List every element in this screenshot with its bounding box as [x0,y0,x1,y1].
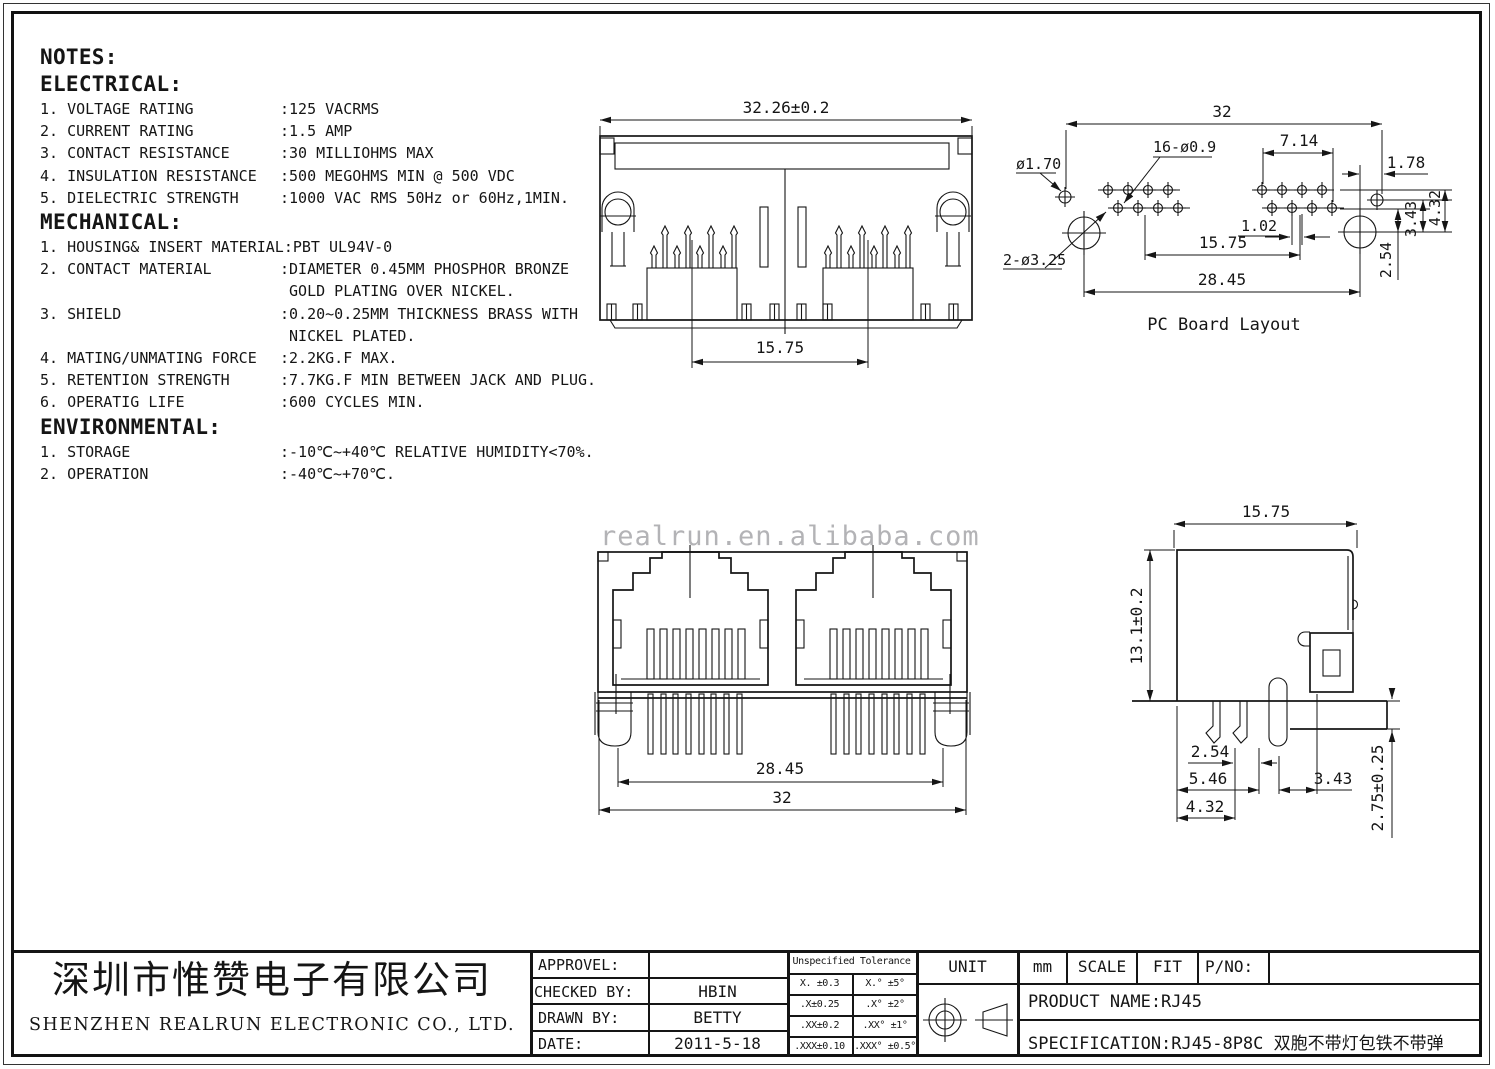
tolerance-cell: X.° ±5° [854,978,916,989]
grid-line [1017,1019,1482,1021]
front-view-drawing: 28.45 32 [585,515,985,820]
dim-label: 5.46 [1189,769,1228,788]
note-line: 3. SHIELD:0.20~0.25MM THICKNESS BRASS WI… [40,303,615,325]
dim-label: 32 [1212,102,1231,121]
grid-line [1197,950,1199,983]
tolerance-cell: .XXX±0.10 [787,1041,852,1052]
notes-block: NOTES: ELECTRICAL: 1. VOLTAGE RATING:125… [40,44,615,485]
note-line: 3. CONTACT RESISTANCE:30 MILLIOHMS MAX [40,142,615,164]
tolerance-cell: .XX±0.2 [787,1020,852,1031]
field-label: DATE: [538,1035,583,1053]
dim-label: 3.43 [1314,769,1353,788]
section-heading-mechanical: MECHANICAL: [40,209,615,236]
title-block-top-line [11,950,1482,953]
engineering-drawing-sheet: { "watermark": "realrun.en.alibaba.com",… [0,0,1495,1069]
tolerance-cell: X. ±0.3 [787,978,852,989]
side-view-drawing: 15.75 13.1±0.2 2.54 5.46 3.43 4.32 2.75±… [1122,498,1482,843]
dim-label: 2.75±0.25 [1368,745,1387,832]
note-line: 1. HOUSING& INSERT MATERIAL:PBT UL94V-0 [40,236,615,258]
dim-label: 2.54 [1191,742,1230,761]
note-line: 5. RETENTION STRENGTH:7.7KG.F MIN BETWEE… [40,369,615,391]
tolerance-cell: .XX° ±1° [854,1020,916,1031]
grid-line [787,994,918,996]
hole-label: 16-ø0.9 [1153,138,1216,156]
tolerance-cell: .X±0.25 [787,999,852,1010]
dim-label: 1.78 [1387,153,1426,172]
note-line: NICKEL PLATED. [40,325,615,347]
grid-line [787,1015,918,1017]
dim-label: 3.43 [1402,201,1420,237]
tolerance-cell: .X° ±2° [854,999,916,1010]
dim-label: 15.75 [1199,233,1247,252]
pcb-layout-drawing: 32 7.14 1.78 ø1.70 16-ø0.9 2-ø3.25 1.02 … [995,100,1470,340]
note-line: 2. CURRENT RATING:1.5 AMP [40,120,615,142]
product-name: PRODUCT NAME:RJ45 [1028,992,1202,1012]
dim-label: 15.75 [756,338,804,357]
dim-label: 4.32 [1186,797,1225,816]
specification: SPECIFICATION:RJ45-8P8C 双胞不带灯包铁不带弹 [1028,1029,1444,1054]
dim-label: 13.1±0.2 [1127,587,1146,664]
hole-label: ø1.70 [1016,155,1061,173]
section-heading-electrical: ELECTRICAL: [40,71,615,98]
pcb-caption: PC Board Layout [1147,315,1301,335]
field-value: BETTY [648,1008,787,1027]
note-line: 2. OPERATION:-40℃~+70℃. [40,463,615,485]
grid-line [787,1036,918,1038]
company-name-cn: 深圳市惟赞电子有限公司 [14,958,530,1002]
unit-label: UNIT [918,957,1017,976]
note-line: 6. OPERATIG LIFE:600 CYCLES MIN. [40,391,615,413]
top-view-drawing: 32.26±0.2 15.75 [586,94,988,386]
pno-label: P/NO: [1205,957,1253,976]
section-heading-environmental: ENVIRONMENTAL: [40,414,615,441]
dim-label: 4.32 [1426,190,1444,226]
grid-line [1268,950,1270,983]
hole-label: 2-ø3.25 [1003,251,1066,269]
dim-label: 7.14 [1280,131,1319,150]
unit-value: mm [1019,957,1066,976]
grid-line [530,1003,789,1005]
dim-label: 32.26±0.2 [743,98,830,117]
scale-value: FIT [1138,957,1197,976]
note-line: 1. STORAGE:-10℃~+40℃ RELATIVE HUMIDITY<7… [40,441,615,463]
note-line: 4. INSULATION RESISTANCE:500 MEGOHMS MIN… [40,165,615,187]
dim-label: 28.45 [1198,270,1246,289]
dim-label: 2.54 [1377,242,1395,278]
tolerance-header: Unspecified Tolerance [787,956,916,967]
field-value: HBIN [648,982,787,1001]
field-value: 2011-5-18 [648,1034,787,1053]
note-line: 4. MATING/UNMATING FORCE:2.2KG.F MAX. [40,347,615,369]
field-label: APPROVEL: [538,956,619,974]
note-line: 5. DIELECTRIC STRENGTH:1000 VAC RMS 50Hz… [40,187,615,209]
dim-label: 32 [772,788,791,807]
grid-line [530,1030,789,1032]
note-line: 2. CONTACT MATERIAL:DIAMETER 0.45MM PHOS… [40,258,615,280]
scale-label: SCALE [1068,957,1136,976]
grid-line [787,973,918,975]
grid-line [530,977,789,979]
field-label: DRAWN BY: [538,1009,619,1027]
projection-symbol [919,984,1017,1056]
dim-label: 28.45 [756,759,804,778]
company-name-en: SHENZHEN REALRUN ELECTRONIC CO., LTD. [14,1012,530,1038]
note-line: GOLD PLATING OVER NICKEL. [40,280,615,302]
note-line: 1. VOLTAGE RATING:125 VACRMS [40,98,615,120]
dim-label: 15.75 [1242,502,1290,521]
field-label: CHECKED BY: [534,983,633,1001]
notes-title: NOTES: [40,44,615,71]
tolerance-cell: .XXX° ±0.5° [854,1041,916,1052]
